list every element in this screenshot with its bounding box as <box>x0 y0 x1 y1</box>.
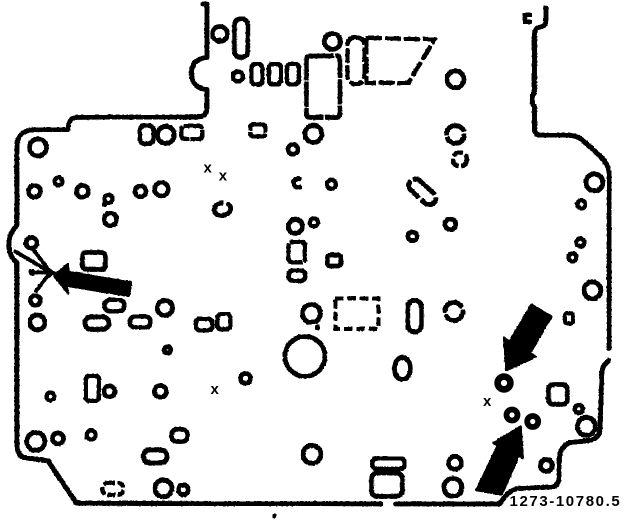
svg-text:1273-10780.5: 1273-10780.5 <box>510 493 622 510</box>
svg-text:x: x <box>204 160 213 177</box>
svg-text:x: x <box>211 381 220 398</box>
svg-text:x: x <box>219 168 228 185</box>
svg-text:x: x <box>483 393 492 410</box>
